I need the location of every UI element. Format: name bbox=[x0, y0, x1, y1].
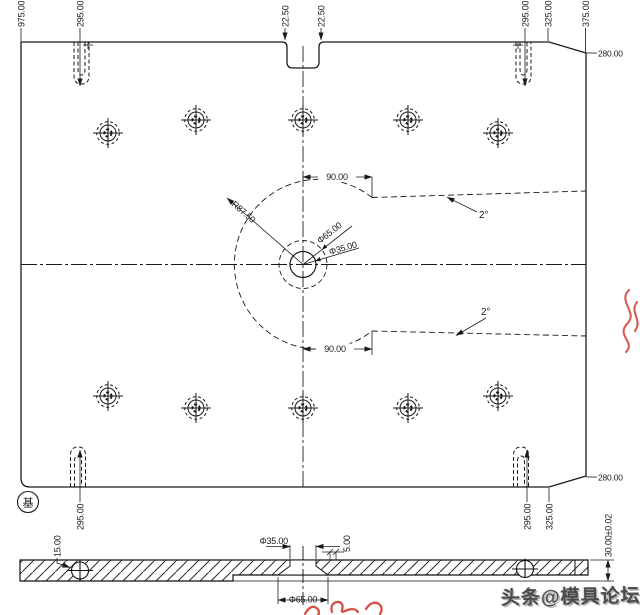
dim-phi35-section: Φ35.00 bbox=[259, 536, 288, 546]
mold-plate-drawing: 975.00 295.00 22.50 22.50 295.00 325.00 … bbox=[0, 0, 640, 615]
red-watermark-script-right bbox=[624, 290, 638, 352]
ordinate-375-top-right: 375.00 bbox=[581, 0, 591, 27]
ordinate-22-5-left: 22.50 bbox=[281, 5, 291, 27]
dim-2deg-bottom: 2° bbox=[481, 307, 490, 318]
plan-dimensions bbox=[21, 28, 597, 502]
datum-symbol: 基 bbox=[18, 492, 39, 513]
dim-280-bottom-right: 280.00 bbox=[598, 473, 623, 483]
hole-symbol bbox=[393, 105, 423, 135]
ordinate-975: 975.00 bbox=[17, 0, 27, 27]
ordinate-295-bottom-left: 295.00 bbox=[76, 503, 86, 530]
ordinate-295-bottom-right: 295.00 bbox=[523, 503, 533, 530]
hole-symbol bbox=[93, 118, 123, 148]
slot-bottom-left bbox=[71, 447, 86, 487]
plan-dim-texts: 975.00 295.00 22.50 22.50 295.00 325.00 … bbox=[17, 0, 624, 530]
ordinate-295-top-left: 295.00 bbox=[76, 0, 86, 27]
slot-bottom-right bbox=[514, 447, 529, 487]
slot-top-left bbox=[74, 42, 89, 84]
dim-15-section: 15.00 bbox=[53, 535, 63, 557]
dim-phi65: Φ65.00 bbox=[315, 220, 344, 246]
dim-2deg-top: 2° bbox=[479, 210, 488, 221]
dim-r87-5: R87.50 bbox=[230, 199, 258, 225]
ordinate-295-top-right: 295.00 bbox=[521, 0, 531, 27]
hole-symbol bbox=[93, 381, 123, 411]
dim-thickness-section: 30.00±0.02 bbox=[604, 514, 614, 557]
dim-90-bottom: 90.00 bbox=[324, 344, 346, 354]
cad-drawing-page: 975.00 295.00 22.50 22.50 295.00 325.00 … bbox=[0, 0, 640, 615]
dim-phi65-section: Φ65.00 bbox=[289, 595, 318, 605]
hole-symbol bbox=[181, 105, 211, 135]
watermark-text: 头条@模具论坛 bbox=[501, 581, 640, 610]
datum-label: 基 bbox=[23, 497, 34, 510]
dim-280-top-right: 280.00 bbox=[598, 49, 623, 59]
dim-phi35: Φ35.00 bbox=[328, 239, 358, 257]
ordinate-325-bottom-right: 325.00 bbox=[545, 503, 555, 530]
hole-symbol bbox=[288, 105, 318, 135]
hole-symbol bbox=[288, 393, 318, 423]
ordinate-325-top-right: 325.00 bbox=[544, 0, 554, 27]
hole-symbol bbox=[483, 381, 513, 411]
hole-symbol bbox=[483, 118, 513, 148]
hole-symbol bbox=[181, 393, 211, 423]
hole-symbol bbox=[393, 393, 423, 423]
dim-90-top: 90.00 bbox=[326, 172, 348, 182]
ordinate-22-5-right: 22.50 bbox=[317, 5, 327, 27]
dim-5-section: 5.00 bbox=[342, 535, 352, 552]
